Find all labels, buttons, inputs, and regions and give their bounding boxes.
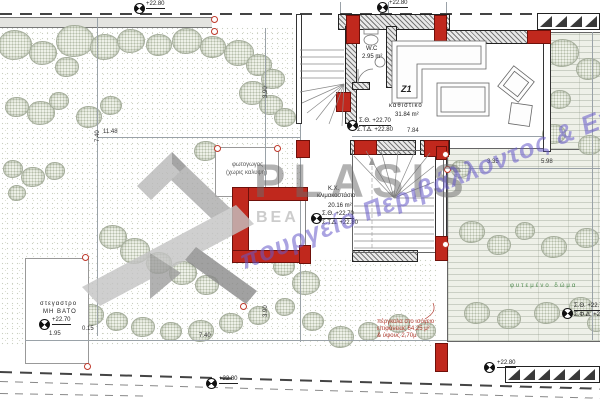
benchmark-icon (377, 2, 388, 13)
level-right-slab: Σ.Φ.Δ. +22. (574, 312, 600, 319)
level-canopy: +22.70 (52, 317, 71, 325)
level-living-slab: Σ.Τ.Δ. +22.80 (357, 127, 393, 134)
benchmark-icon (206, 378, 217, 389)
room-z1-name: καθιστικο (389, 103, 423, 110)
room-z1-area: 31.84 m² (395, 112, 419, 119)
pergola-note-3: & ύψους 2,70μ (377, 333, 417, 340)
level-bottom-mid: +22.80 (497, 360, 516, 368)
floor-plan-canvas: 11.487.403.907.843.355.980.151.957.403.9… (0, 0, 600, 400)
dimension-label: 7.84 (407, 128, 419, 134)
room-wc-area: 2.95 m² (362, 54, 382, 61)
level-living-floor: Σ.Θ. +22.70 (359, 118, 391, 126)
level-top-left: +22.80 (146, 1, 165, 9)
benchmark-icon (562, 308, 573, 319)
green-roof-label: φυτεμένο δώμα (510, 283, 577, 290)
pergola-note-1: πέργκολα στο ισόγειο (377, 319, 434, 326)
pergola-note-2: επιφάνειας 64,25 μ² (377, 326, 430, 333)
benchmark-icon (134, 3, 145, 14)
benchmark-icon (39, 319, 50, 330)
dimension-label: 7.40 (95, 130, 101, 142)
dimension-label: 1.95 (49, 331, 61, 337)
dimension-label: 0.15 (82, 326, 94, 332)
dimension-label: 5.98 (541, 159, 553, 165)
level-bottom-left: +22.80 (219, 376, 238, 384)
dimension-label: 11.48 (103, 129, 118, 135)
canopy-label-1: στεγαστρο (40, 301, 77, 308)
canopy-label-2: ΜΗ ΒΑΤΟ (43, 309, 77, 316)
room-wc-name: W.C (366, 46, 377, 53)
dimension-label: 7.40 (199, 333, 211, 339)
benchmark-icon (484, 362, 495, 373)
level-top-mid: +22.80 (389, 0, 408, 8)
dimension-label: 3.90 (263, 305, 269, 317)
room-z1-tag: Z1 (401, 85, 412, 95)
level-right-floor: Σ.Θ. +22.7 (574, 303, 600, 311)
dimension-label: 3.90 (263, 86, 269, 98)
